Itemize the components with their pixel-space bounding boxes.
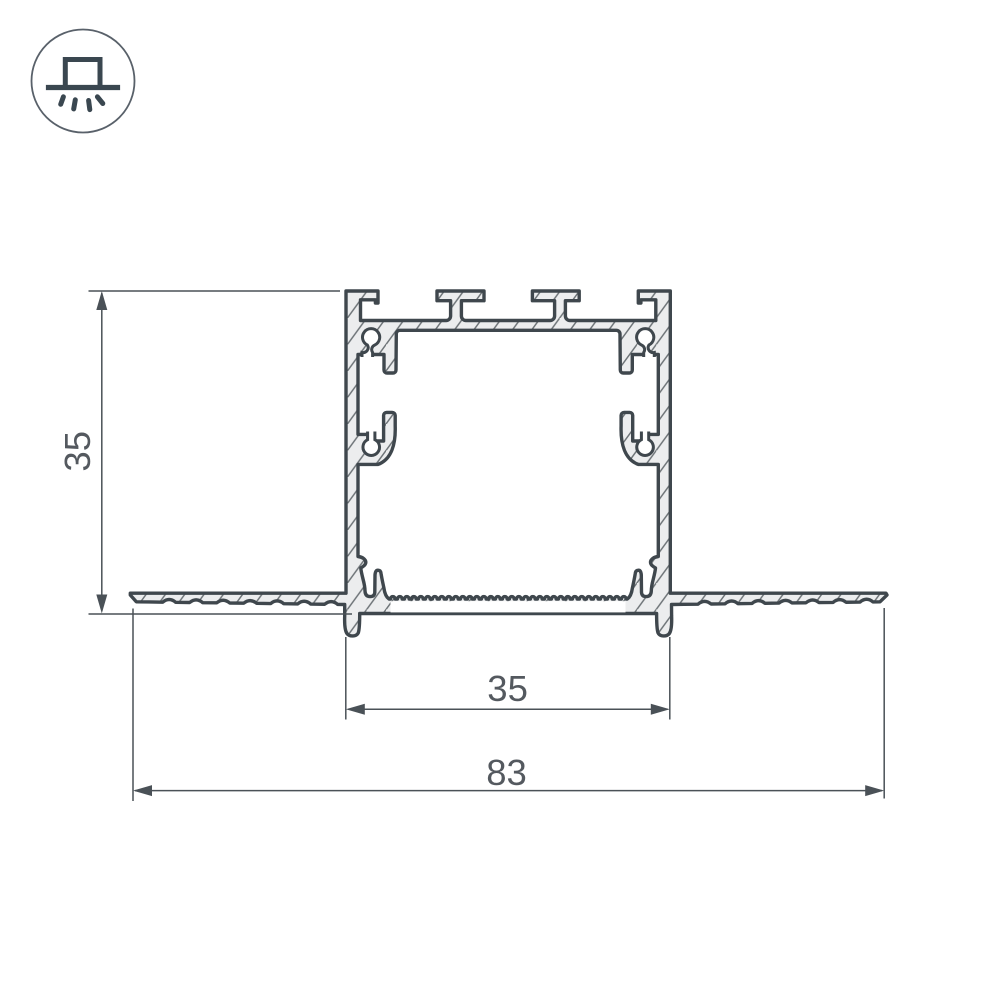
svg-text:35: 35 <box>487 668 528 709</box>
svg-text:83: 83 <box>486 752 527 793</box>
svg-text:35: 35 <box>57 431 98 472</box>
